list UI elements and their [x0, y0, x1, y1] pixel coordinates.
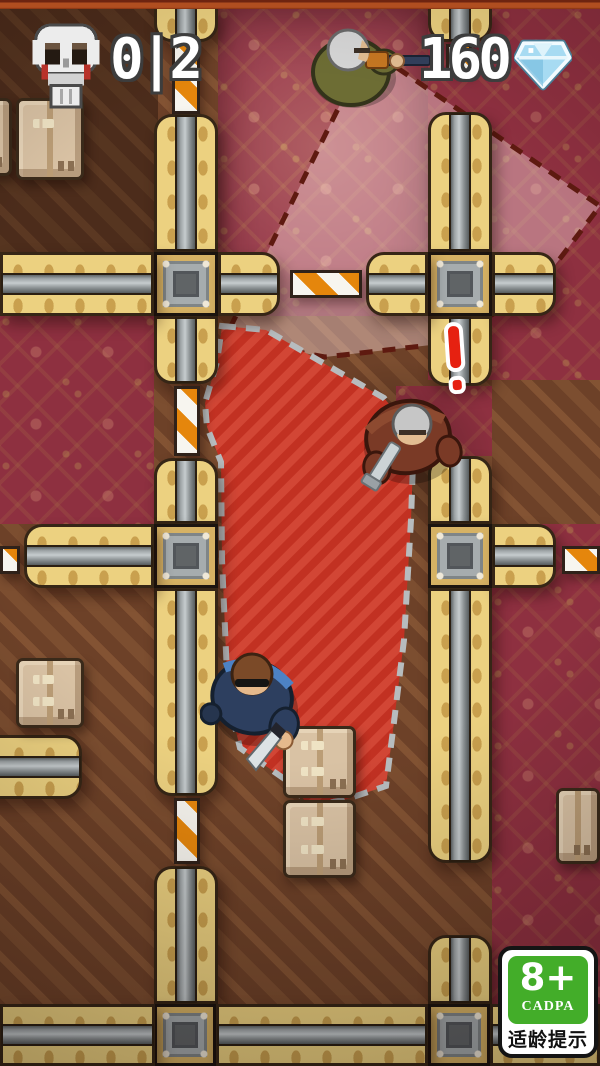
- wall-junction: [154, 524, 218, 588]
- gem-counter: 160: [419, 30, 508, 90]
- cardboard-box: [16, 658, 84, 728]
- wall-segment: [0, 1004, 155, 1066]
- barrier: [174, 798, 200, 864]
- barrier: [562, 546, 600, 574]
- guard-pistol: [350, 382, 470, 512]
- kill-counter: 0|2: [110, 30, 199, 90]
- wall-segment: [154, 458, 218, 524]
- wall-junction: [154, 252, 218, 316]
- wall-junction: [428, 524, 492, 588]
- wall-segment: [366, 252, 428, 316]
- age-rating-org: CADPA: [508, 998, 588, 1016]
- cardboard-box: [556, 788, 600, 864]
- diamond-icon: [514, 38, 572, 92]
- age-rating-green-panel: 8+ CADPA: [508, 956, 588, 1024]
- barrier: [0, 546, 20, 574]
- barrier: [174, 386, 200, 456]
- wall-segment: [428, 588, 492, 863]
- player-assassin[interactable]: [200, 626, 312, 776]
- barrier: [290, 270, 362, 298]
- cardboard-box: [0, 98, 12, 176]
- age-rating-badge: 8+ CADPA 适龄提示: [498, 946, 598, 1058]
- age-rating-age: 8+: [508, 956, 588, 1000]
- wall-segment: [24, 524, 154, 588]
- guard-rifle: [296, 12, 436, 124]
- wall-segment: [0, 735, 82, 799]
- wall-segment: [216, 1004, 428, 1066]
- cardboard-box: [283, 800, 356, 878]
- wall-segment: [154, 316, 218, 384]
- skull-icon: [26, 22, 106, 110]
- wall-junction: [428, 252, 492, 316]
- wall-segment: [492, 252, 556, 316]
- game-playfield[interactable]: 0|2 160 8+ CADPA 适龄提示: [0, 0, 600, 1066]
- exclamation-icon: [437, 319, 475, 401]
- wall-segment: [428, 112, 492, 252]
- wall-segment: [154, 866, 218, 1004]
- wall-segment: [218, 252, 280, 316]
- wall-segment: [0, 252, 154, 316]
- wall-segment: [154, 114, 218, 252]
- cardboard-box: [16, 98, 84, 180]
- age-rating-caption: 适龄提示: [502, 1025, 594, 1052]
- wall-segment: [492, 524, 556, 588]
- wall-junction: [428, 1004, 490, 1066]
- top-bar: [0, 0, 600, 9]
- wall-junction: [154, 1004, 216, 1066]
- wall-segment: [428, 935, 492, 1004]
